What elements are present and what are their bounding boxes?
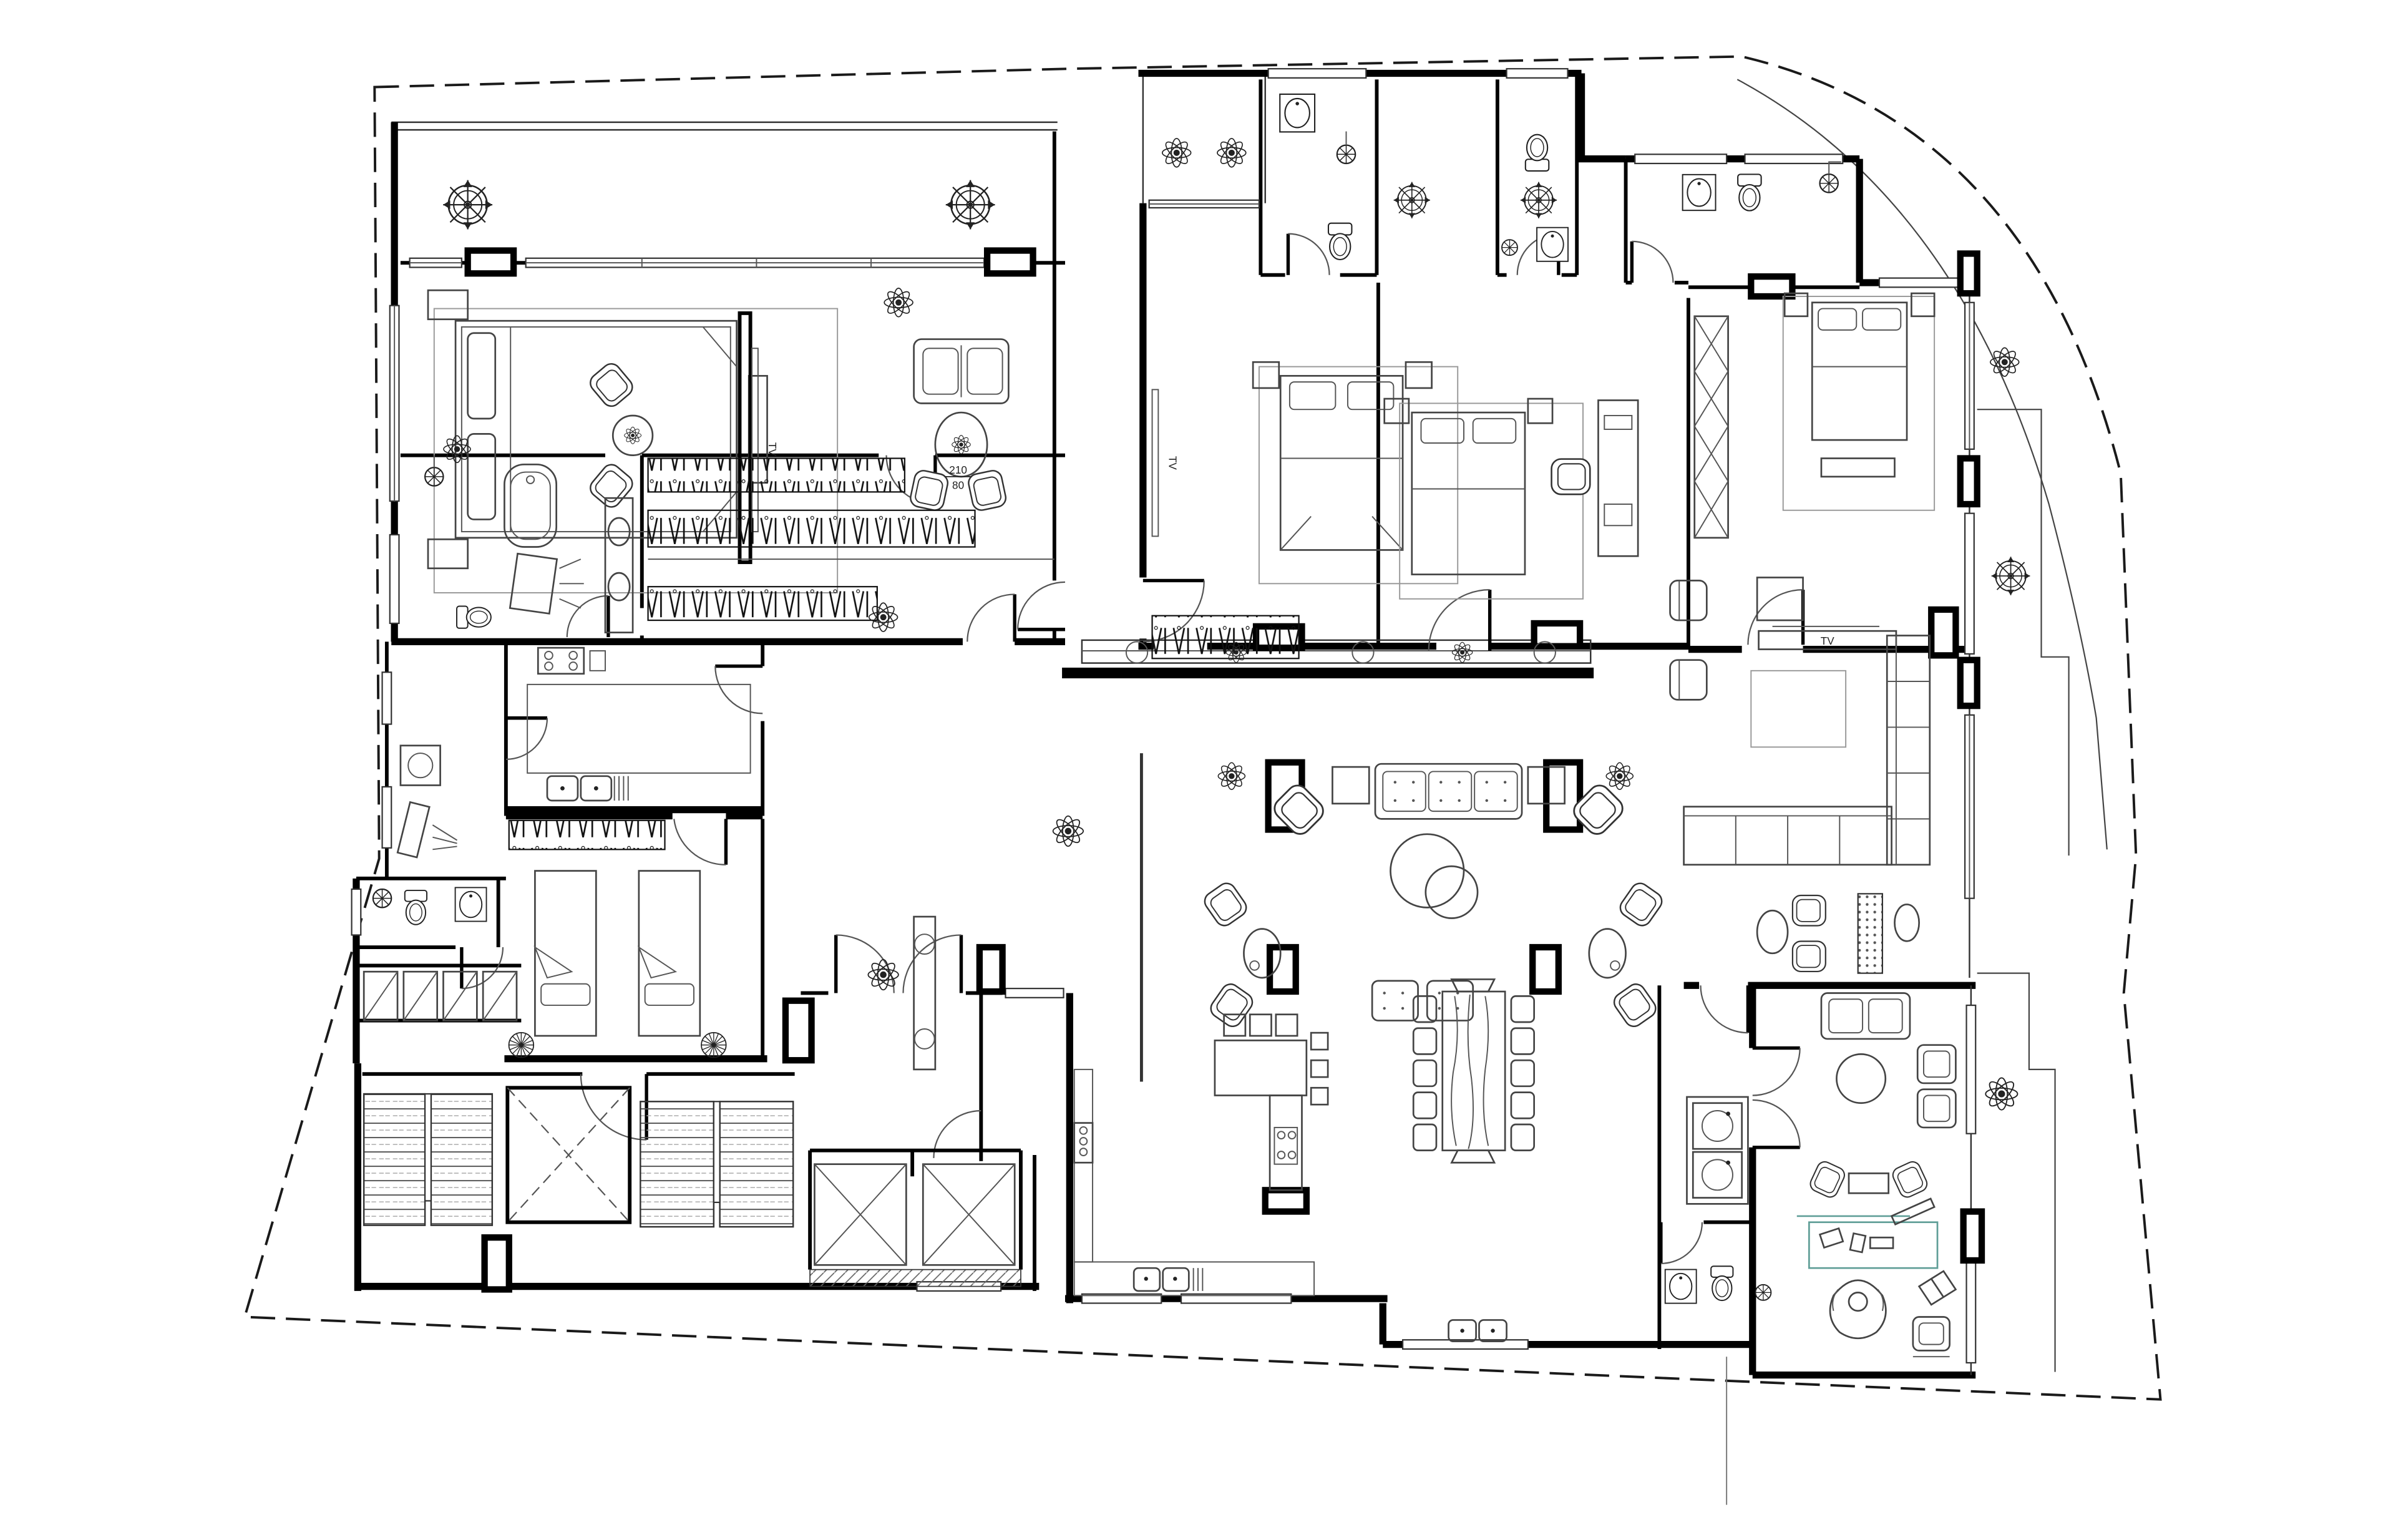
open-book — [1919, 1271, 1956, 1305]
balcony-parapet — [391, 122, 1058, 130]
terrace-step-lines — [1977, 409, 2069, 1372]
stair-treads-icon — [720, 1101, 794, 1227]
wheel-tree-icon — [946, 180, 995, 230]
stair-core — [364, 1088, 1021, 1286]
counter — [1074, 1070, 1093, 1262]
column — [987, 251, 1033, 274]
bar-stool-icon — [1250, 1015, 1271, 1036]
office-room — [1797, 993, 1956, 1357]
sink-icon — [547, 776, 628, 801]
wall-south-kitchen2 — [1065, 1299, 1753, 1344]
washing-machine-icon — [401, 746, 441, 786]
laundry-closet — [1687, 1097, 1748, 1204]
washing-machine-icon — [1693, 1103, 1741, 1149]
stair-treads-icon — [431, 1094, 492, 1226]
column — [1270, 947, 1296, 992]
wardrobe-x — [1695, 316, 1728, 538]
monitor — [1892, 1199, 1935, 1224]
hanger-rack-icon — [648, 459, 905, 492]
sink-icon — [1449, 1320, 1507, 1341]
service-room — [397, 746, 457, 857]
stair-treads-icon — [364, 1094, 425, 1226]
ceiling-fan-icon — [509, 1033, 534, 1058]
tv-label: TV — [1166, 456, 1179, 470]
wall-ne-corner — [1626, 159, 1974, 283]
half-wall-console — [1062, 668, 1594, 678]
round-coffee-table — [1391, 834, 1464, 908]
sofa-3seat — [1332, 764, 1564, 819]
counter — [1074, 1262, 1314, 1295]
wall-bed4-west — [1688, 287, 1859, 649]
stair-treads-icon — [640, 1101, 714, 1227]
sectional-sofa — [1684, 636, 1930, 865]
living-room — [1126, 641, 1665, 1030]
office-chair-person — [1830, 1280, 1886, 1338]
terrace-curve — [1737, 79, 2107, 849]
sink-icon — [1134, 1268, 1202, 1291]
bathroom-small-west — [373, 887, 487, 924]
hall-cabinet — [914, 917, 935, 1070]
notepad — [1820, 1229, 1843, 1248]
column — [980, 947, 1003, 992]
twin-bedroom — [509, 821, 726, 1058]
keyboard — [1870, 1237, 1893, 1248]
wheel-tree-icon — [443, 180, 492, 230]
bathroom-bed4 — [1683, 162, 1841, 211]
bedroom-3 — [1385, 399, 1638, 599]
hanger-rack-icon — [648, 510, 975, 547]
hanger-rack-icon — [509, 821, 665, 850]
kitchen-counter — [527, 685, 750, 773]
side-table — [1332, 767, 1369, 804]
chair-pair-south — [1757, 895, 1826, 972]
bar-stool-icon — [1276, 1015, 1297, 1036]
stove-icon — [538, 648, 605, 674]
storage-lockers — [364, 972, 517, 1020]
hanger-rack-icon — [648, 587, 877, 620]
ceiling-fan-icon — [701, 1033, 726, 1058]
dining-chairs — [1413, 996, 1534, 1150]
meeting-chairs — [1808, 1159, 1929, 1200]
floor-plan-canvas: TV 210 — [0, 0, 2396, 1540]
bathroom-bed2 — [1280, 94, 1355, 260]
elevator-shaft — [507, 1088, 630, 1222]
bed-bench — [1821, 459, 1895, 477]
column-pier — [1960, 253, 1977, 293]
walls — [356, 74, 1975, 1375]
column — [1265, 1190, 1307, 1211]
bathtub-icon — [504, 464, 556, 547]
door-height-label: 80 — [952, 479, 964, 491]
bar-stool-icon — [1311, 1060, 1328, 1077]
bar-stool-icon — [1311, 1088, 1328, 1104]
tv-label: TV — [1821, 635, 1834, 647]
desk-chair — [1552, 459, 1590, 495]
elevator-shaft — [810, 1151, 1021, 1287]
column-pier — [1964, 1212, 1982, 1260]
toilet-icon — [457, 607, 491, 628]
wheel-tree-icon — [1992, 557, 2030, 595]
stove-icon — [1074, 1123, 1093, 1163]
reading-corner — [1913, 1271, 1956, 1357]
single-bed — [639, 871, 700, 1036]
bar-stool-icon — [1311, 1033, 1328, 1050]
door-width-label: 210 — [949, 464, 967, 476]
tablet — [1850, 1234, 1866, 1252]
balcony-bed2 — [1143, 74, 1265, 203]
lounge-east — [1670, 578, 1930, 973]
sofa-2seat — [1821, 993, 1910, 1038]
side-table — [1757, 578, 1803, 621]
single-sofa-pair — [1917, 1045, 1955, 1128]
stove-icon — [1274, 1128, 1297, 1164]
hanger-rack-icon — [1152, 616, 1299, 659]
desk-area — [1552, 400, 1639, 556]
single-bed — [535, 871, 596, 1036]
door-size-annotation: 210 80 — [945, 464, 972, 491]
ironing-board — [397, 802, 429, 857]
wall-bath4 — [1626, 159, 1688, 283]
column — [1546, 763, 1580, 830]
desk — [1797, 1199, 1937, 1268]
bathroom-bed3 — [1502, 135, 1568, 261]
kitchen-island — [1215, 1015, 1328, 1191]
column-pier — [1960, 660, 1977, 706]
wall-lockers — [356, 965, 521, 1020]
double-bed — [1385, 399, 1552, 575]
wall-bath2a — [1260, 79, 1376, 275]
double-bed — [1253, 362, 1431, 550]
washing-machine-icon — [1693, 1152, 1741, 1197]
hatched-floor — [810, 1270, 1021, 1287]
wall-midblock-north — [1139, 74, 1626, 159]
bedroom-4: TV — [1695, 293, 1934, 649]
column — [1931, 610, 1955, 655]
column-pier — [1960, 459, 1977, 504]
entry-hall — [868, 816, 1083, 1070]
vanity-mirror — [510, 553, 583, 613]
column — [786, 1001, 812, 1060]
column — [468, 251, 514, 274]
round-table — [1836, 1054, 1885, 1103]
double-bed — [1785, 293, 1934, 477]
dotted-bench — [1858, 894, 1882, 973]
column — [1532, 947, 1559, 992]
flower-plant-icon — [1985, 1078, 2017, 1109]
chair-cluster-right — [1589, 880, 1665, 1030]
column — [485, 1237, 509, 1289]
tv-panel-icon — [1152, 389, 1159, 536]
pouf — [1372, 981, 1473, 1021]
flower-plant-icon — [884, 288, 913, 317]
tv-label: TV — [766, 442, 779, 456]
